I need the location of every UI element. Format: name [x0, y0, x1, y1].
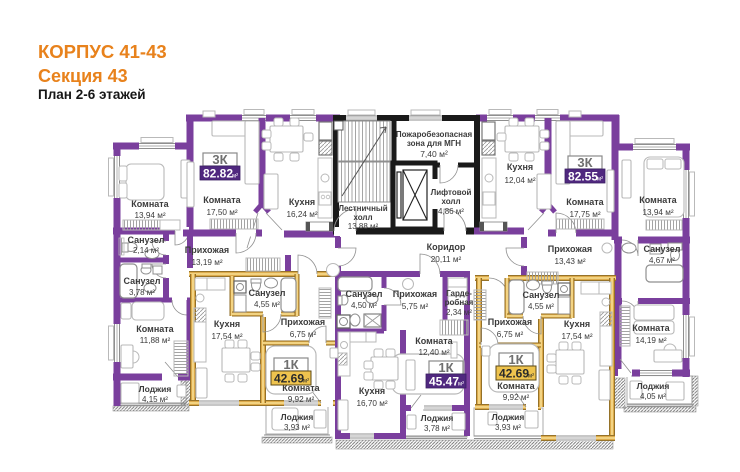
svg-text:17,50 м²: 17,50 м²: [206, 208, 237, 217]
svg-text:Санузел: Санузел: [127, 235, 164, 245]
svg-text:Прихожая: Прихожая: [185, 245, 229, 255]
svg-text:Санузел: Санузел: [522, 290, 559, 300]
svg-text:42.69: 42.69: [274, 372, 304, 386]
svg-text:Коридор: Коридор: [427, 242, 466, 252]
svg-text:20,11 м²: 20,11 м²: [431, 255, 462, 264]
svg-text:Санузел: Санузел: [643, 244, 680, 254]
svg-text:14,19 м²: 14,19 м²: [635, 336, 666, 345]
svg-text:Прихожая: Прихожая: [488, 317, 532, 327]
svg-text:Пожаробезопасная: Пожаробезопасная: [396, 130, 473, 139]
svg-text:Прихожая: Прихожая: [548, 244, 592, 254]
svg-text:Прихожая: Прихожая: [393, 289, 437, 299]
svg-text:Комната: Комната: [566, 197, 604, 207]
svg-text:Санузел: Санузел: [248, 288, 285, 298]
svg-text:16,70 м²: 16,70 м²: [356, 399, 387, 408]
svg-text:м²: м²: [458, 382, 464, 388]
svg-text:Лестничный: Лестничный: [338, 204, 387, 213]
svg-text:План 2-6 этажей: План 2-6 этажей: [38, 87, 146, 102]
svg-text:6,75 м²: 6,75 м²: [497, 330, 524, 339]
svg-text:Кухня: Кухня: [564, 319, 590, 329]
svg-text:3,78 м²: 3,78 м²: [424, 424, 450, 433]
svg-text:4,55 м²: 4,55 м²: [528, 302, 554, 311]
svg-text:4,55 м²: 4,55 м²: [254, 300, 280, 309]
svg-text:1К: 1К: [508, 352, 523, 367]
svg-text:17,54 м²: 17,54 м²: [211, 332, 242, 341]
svg-text:82.55: 82.55: [568, 170, 598, 184]
svg-text:4,50 м²: 4,50 м²: [351, 301, 377, 310]
svg-text:Комната: Комната: [632, 323, 670, 333]
svg-text:4,67 м²: 4,67 м²: [649, 256, 675, 265]
svg-text:5,75 м²: 5,75 м²: [402, 302, 429, 311]
svg-text:3,78 м²: 3,78 м²: [129, 288, 155, 297]
svg-text:м²: м²: [528, 374, 534, 380]
svg-text:Лоджия: Лоджия: [421, 413, 454, 423]
svg-text:Прихожая: Прихожая: [281, 317, 325, 327]
svg-text:Кухня: Кухня: [359, 386, 385, 396]
svg-text:Кухня: Кухня: [289, 197, 315, 207]
svg-text:Комната: Комната: [203, 195, 241, 205]
svg-text:м²: м²: [303, 379, 309, 385]
svg-text:4,15 м²: 4,15 м²: [142, 395, 168, 404]
svg-text:12,40 м²: 12,40 м²: [418, 348, 449, 357]
svg-text:Гарде-: Гарде-: [446, 289, 472, 298]
svg-text:Комната: Комната: [136, 324, 174, 334]
svg-text:Комната: Комната: [497, 381, 535, 391]
svg-text:3К: 3К: [577, 155, 592, 170]
svg-text:Лифтовой: Лифтовой: [431, 188, 472, 197]
svg-text:Секция 43: Секция 43: [38, 66, 128, 86]
svg-text:3,93 м²: 3,93 м²: [495, 423, 521, 432]
svg-text:зона для МГН: зона для МГН: [407, 139, 461, 148]
svg-text:17,54 м²: 17,54 м²: [561, 332, 592, 341]
svg-text:Санузел: Санузел: [123, 276, 160, 286]
svg-text:Лоджия: Лоджия: [637, 381, 670, 391]
svg-text:16,24 м²: 16,24 м²: [286, 210, 317, 219]
svg-text:13,94 м²: 13,94 м²: [134, 211, 165, 220]
svg-text:82.82: 82.82: [203, 167, 233, 181]
svg-text:Комната: Комната: [639, 195, 677, 205]
svg-text:42.69: 42.69: [499, 367, 529, 381]
svg-text:Лоджия: Лоджия: [281, 412, 314, 422]
svg-text:13,94 м²: 13,94 м²: [642, 208, 673, 217]
svg-text:Комната: Комната: [415, 336, 453, 346]
svg-text:Лоджия: Лоджия: [492, 412, 525, 422]
svg-text:робная: робная: [445, 298, 474, 307]
svg-text:м²: м²: [597, 177, 603, 183]
svg-text:6,75 м²: 6,75 м²: [290, 330, 317, 339]
svg-text:13,88 м²: 13,88 м²: [348, 222, 379, 231]
svg-text:45.47: 45.47: [429, 375, 459, 389]
svg-text:м²: м²: [232, 174, 238, 180]
svg-text:4,86 м²: 4,86 м²: [438, 207, 464, 216]
svg-text:1К: 1К: [438, 360, 453, 375]
svg-text:Кухня: Кухня: [214, 319, 240, 329]
svg-text:4,05 м²: 4,05 м²: [640, 392, 666, 401]
svg-text:7,40 м²: 7,40 м²: [420, 149, 448, 159]
svg-text:Санузел: Санузел: [345, 289, 382, 299]
svg-text:11,88 м²: 11,88 м²: [140, 336, 171, 345]
svg-text:Комната: Комната: [131, 199, 169, 209]
svg-text:Кухня: Кухня: [507, 162, 533, 172]
svg-text:холл: холл: [353, 213, 372, 222]
svg-text:КОРПУС 41-43: КОРПУС 41-43: [38, 41, 167, 62]
svg-text:17,75 м²: 17,75 м²: [569, 210, 600, 219]
svg-text:9,92 м²: 9,92 м²: [288, 395, 315, 404]
svg-text:2,14 м²: 2,14 м²: [133, 246, 159, 255]
svg-text:1К: 1К: [283, 357, 298, 372]
svg-text:Лоджия: Лоджия: [139, 384, 172, 394]
svg-text:3,93 м²: 3,93 м²: [284, 423, 310, 432]
svg-text:холл: холл: [441, 197, 460, 206]
svg-text:3К: 3К: [212, 152, 227, 167]
svg-text:2,34 м²: 2,34 м²: [446, 308, 472, 317]
svg-text:12,04 м²: 12,04 м²: [504, 176, 535, 185]
svg-text:13,43 м²: 13,43 м²: [554, 257, 585, 266]
svg-text:13,19 м²: 13,19 м²: [191, 258, 222, 267]
svg-text:9,92 м²: 9,92 м²: [503, 393, 530, 402]
